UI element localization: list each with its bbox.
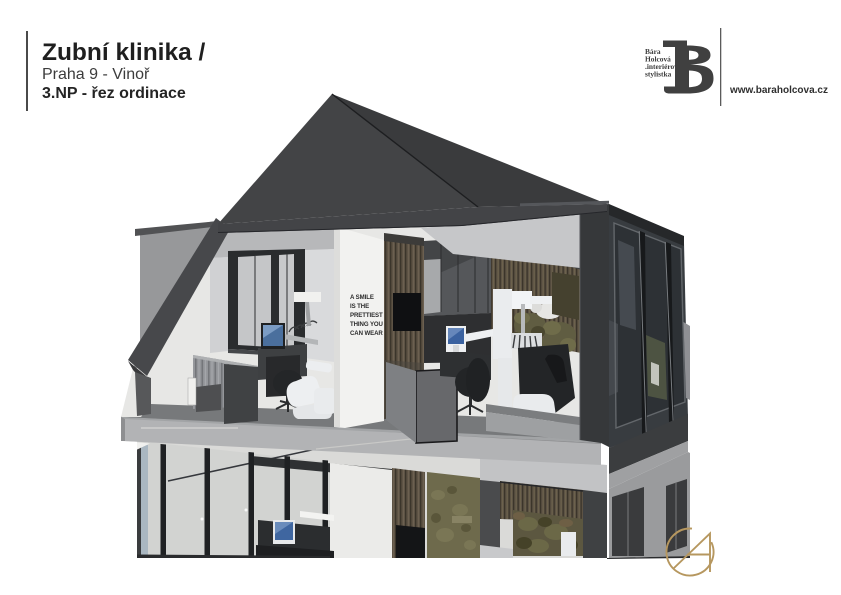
svg-text:CAN WEAR: CAN WEAR [350,330,383,337]
svg-text:Zubní klinika /: Zubní klinika / [42,39,206,66]
svg-text:A SMILE: A SMILE [350,294,374,301]
svg-text:THING YOU: THING YOU [350,321,384,328]
svg-text:www.baraholcova.cz: www.baraholcova.cz [729,85,828,96]
svg-text:3.NP - řez ordinace: 3.NP - řez ordinace [42,85,186,102]
svg-text:PRETTIEST: PRETTIEST [350,312,383,319]
svg-text:stylistka: stylistka [645,70,672,79]
svg-text:Praha 9 - Vinoř: Praha 9 - Vinoř [42,66,150,83]
svg-text:IS THE: IS THE [350,303,369,310]
